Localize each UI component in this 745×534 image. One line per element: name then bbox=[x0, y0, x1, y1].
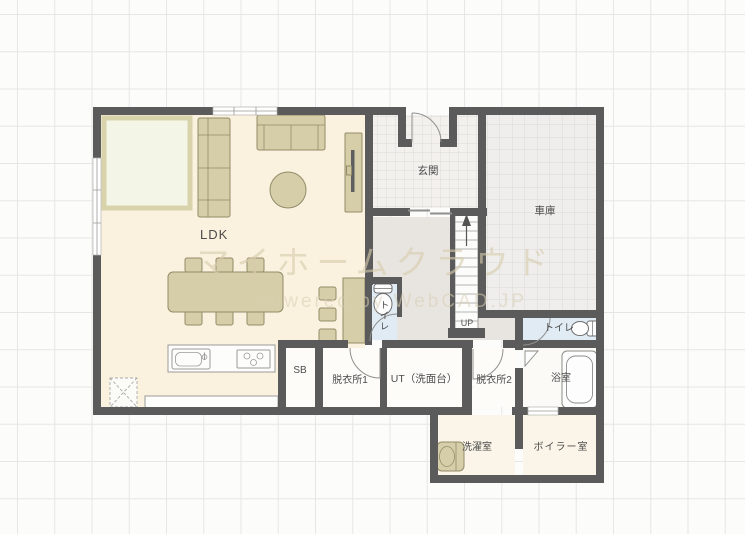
floorplan-canvas: LDK 玄関 車庫 SB 脱衣所1 UT（洗面台） 脱衣所2 トイレ トイレ 浴… bbox=[0, 0, 745, 534]
round-table-icon bbox=[270, 172, 306, 208]
floorplan-drawing bbox=[0, 0, 745, 534]
entrance-floor bbox=[373, 115, 478, 208]
dressing2-floor bbox=[473, 348, 515, 407]
floorplan-page: LDK 玄関 車庫 SB 脱衣所1 UT（洗面台） 脱衣所2 トイレ トイレ 浴… bbox=[0, 0, 745, 534]
sofa-chaise-icon bbox=[198, 118, 230, 217]
window-bathroom bbox=[528, 407, 558, 415]
window-left bbox=[93, 158, 101, 255]
sofa-icon bbox=[257, 115, 325, 150]
utility-floor bbox=[387, 348, 462, 407]
toilet-upper-icon bbox=[572, 321, 599, 336]
stove-icon bbox=[237, 350, 270, 368]
entrance-hall-sliding-door-icon bbox=[408, 211, 452, 214]
boiler-floor bbox=[523, 415, 596, 475]
washing-machine-icon bbox=[437, 442, 464, 471]
toilet-hall-icon bbox=[374, 284, 392, 315]
hatch-box-icon bbox=[110, 378, 137, 407]
stairs-icon bbox=[455, 213, 478, 330]
window-top bbox=[213, 107, 277, 115]
tv-board-icon bbox=[345, 133, 362, 212]
sink-icon bbox=[172, 349, 210, 369]
shoebox-floor bbox=[286, 348, 315, 407]
bathtub-icon bbox=[562, 351, 597, 408]
rug bbox=[104, 118, 190, 208]
garage-floor bbox=[486, 115, 596, 310]
